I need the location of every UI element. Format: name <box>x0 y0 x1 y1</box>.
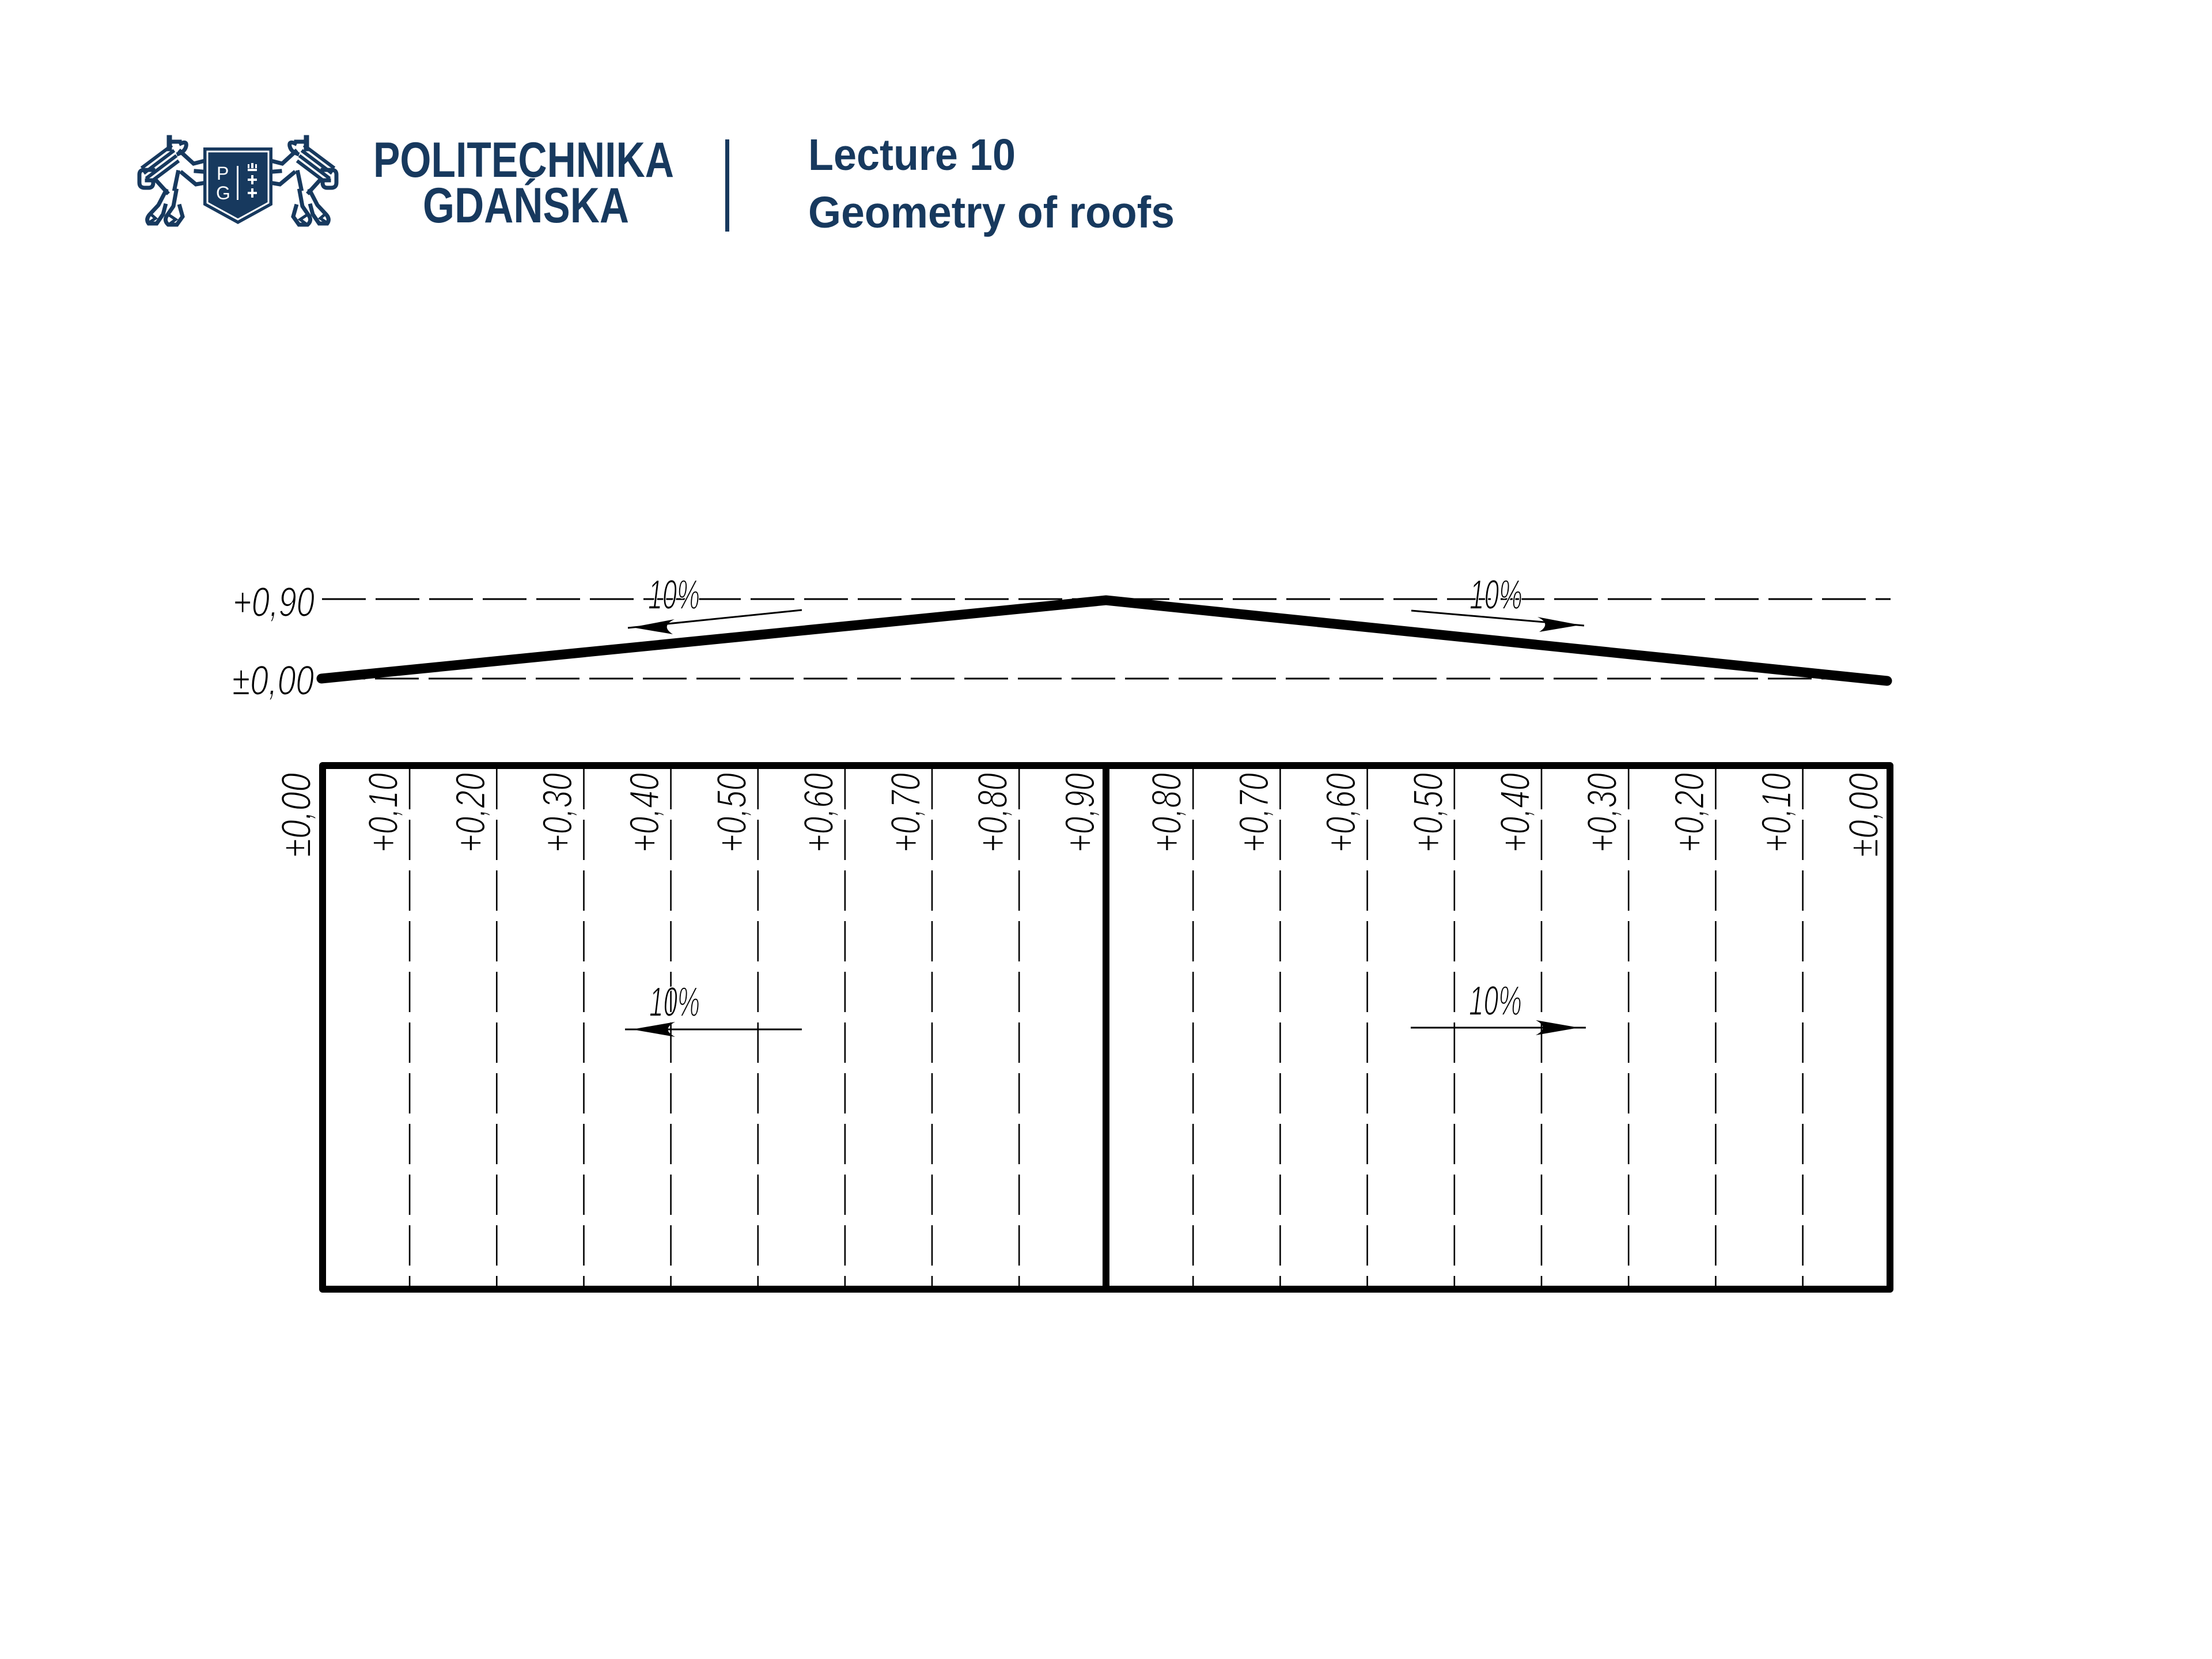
svg-text:P: P <box>217 163 229 184</box>
svg-text:10%: 10% <box>649 979 700 1025</box>
svg-text:+0,80: +0,80 <box>1144 773 1190 853</box>
svg-text:GDAŃSKA: GDAŃSKA <box>423 178 629 233</box>
svg-text:±0,00: ±0,00 <box>232 658 314 704</box>
svg-text:+0,90: +0,90 <box>233 579 315 626</box>
svg-text:+0,40: +0,40 <box>622 773 668 853</box>
svg-text:±0,00: ±0,00 <box>1841 773 1887 857</box>
svg-text:+0,10: +0,10 <box>361 773 407 853</box>
svg-text:+0,60: +0,60 <box>1319 773 1365 853</box>
svg-text:+0,30: +0,30 <box>535 773 581 853</box>
svg-text:Geometry of roofs: Geometry of roofs <box>808 188 1175 237</box>
svg-text:+0,50: +0,50 <box>1406 773 1452 853</box>
svg-text:+0,20: +0,20 <box>1666 773 1713 853</box>
svg-text:+0,80: +0,80 <box>970 773 1016 853</box>
svg-text:+0,90: +0,90 <box>1057 773 1103 853</box>
svg-text:+0,20: +0,20 <box>448 773 494 853</box>
svg-text:+0,60: +0,60 <box>796 773 842 853</box>
svg-text:+0,30: +0,30 <box>1580 773 1626 853</box>
svg-text:+0,50: +0,50 <box>709 773 755 853</box>
svg-text:+0,10: +0,10 <box>1754 773 1800 853</box>
svg-text:G: G <box>216 183 230 203</box>
svg-text:+0,70: +0,70 <box>1231 773 1277 853</box>
svg-text:Lecture 10: Lecture 10 <box>808 130 1016 180</box>
svg-text:+0,70: +0,70 <box>883 773 929 853</box>
svg-text:10%: 10% <box>648 572 700 618</box>
svg-text:10%: 10% <box>1469 572 1522 618</box>
svg-text:+0,40: +0,40 <box>1493 773 1539 853</box>
svg-text:±0,00: ±0,00 <box>274 773 320 857</box>
svg-text:10%: 10% <box>1469 978 1522 1024</box>
